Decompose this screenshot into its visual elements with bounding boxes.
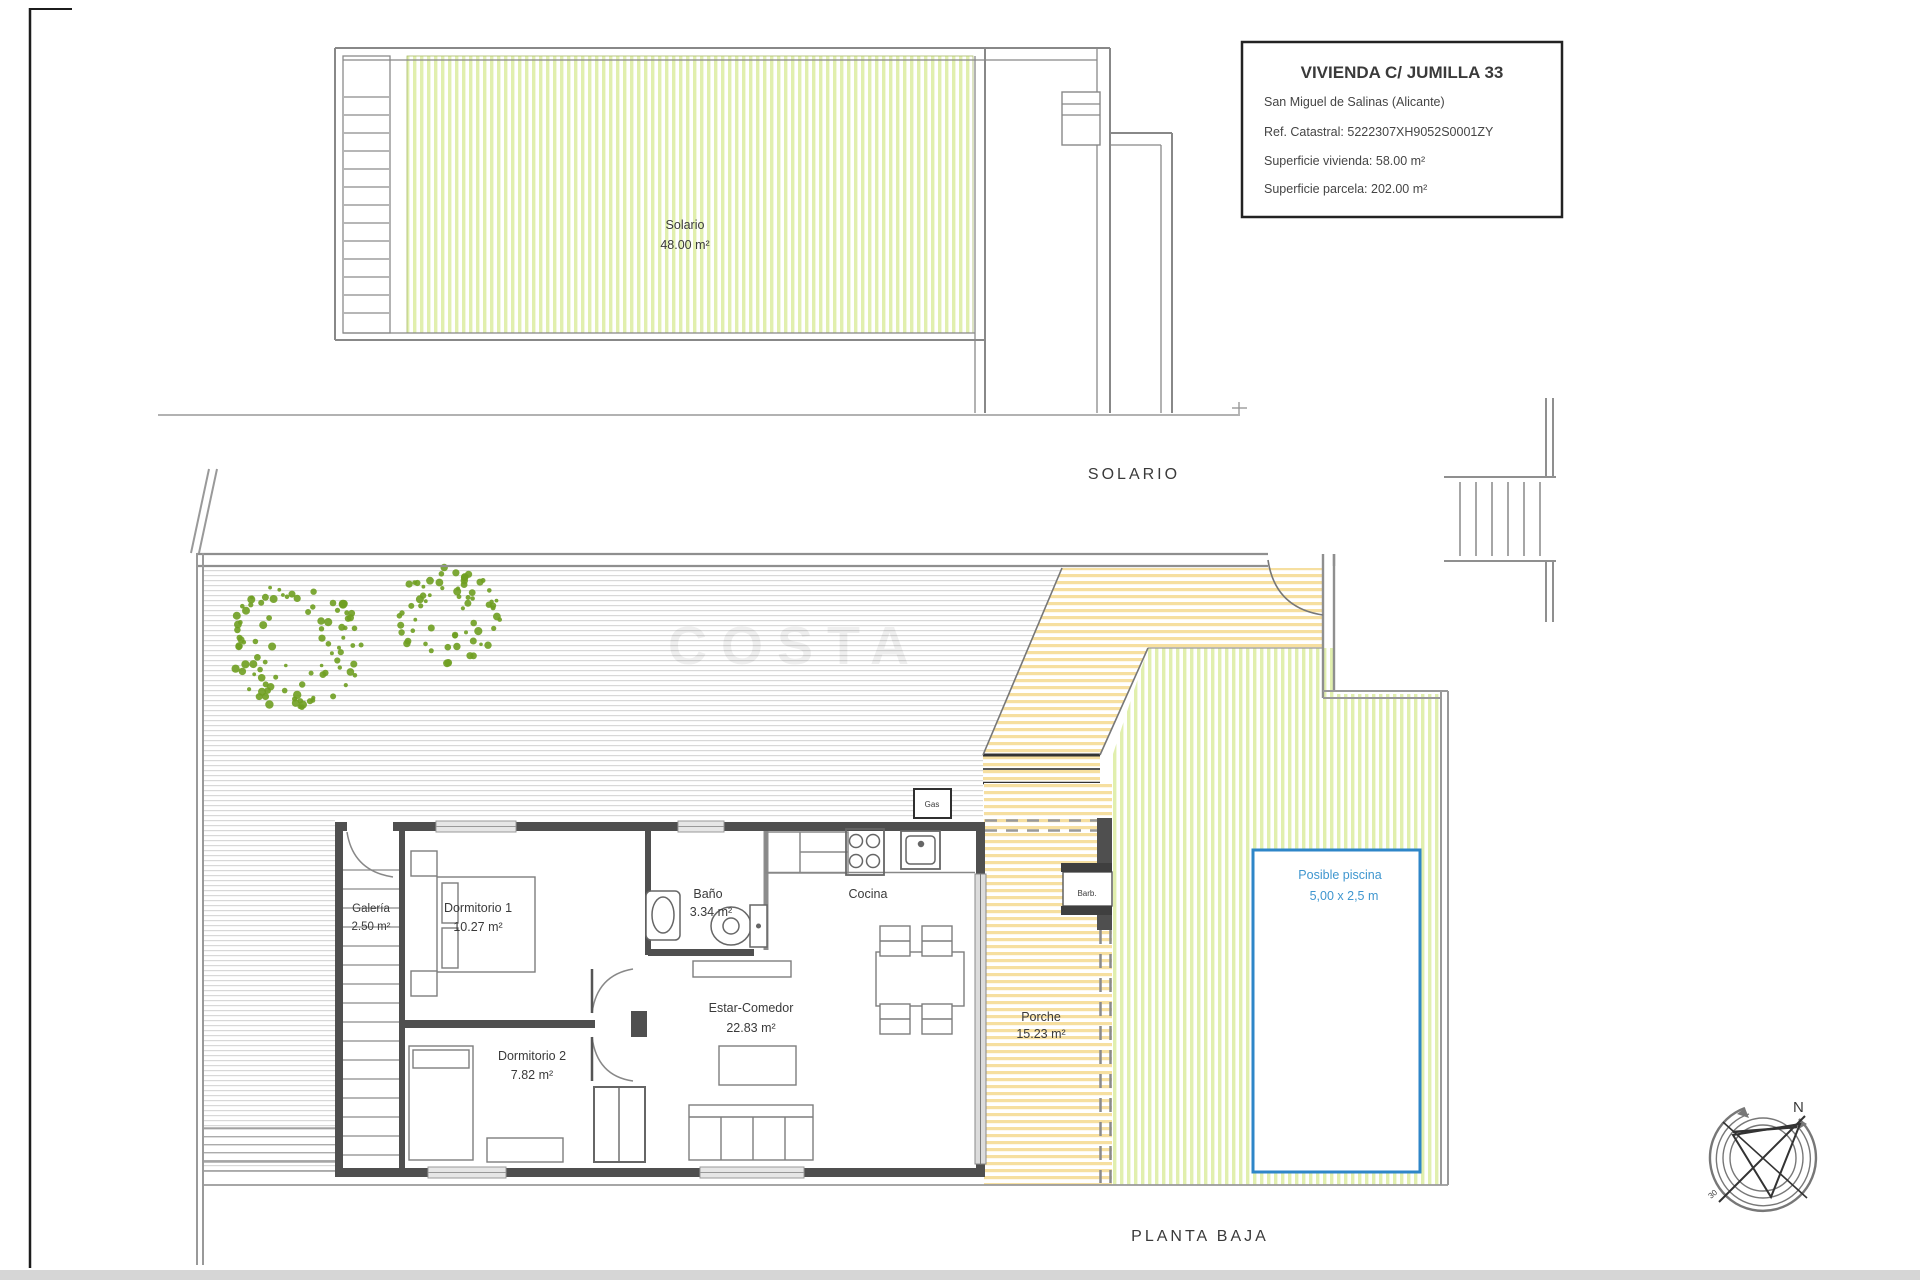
house: Galería 2.50 m² Dormitorio 1 10.27 m² Ba… xyxy=(335,821,986,1178)
title-block-title: VIVIENDA C/ JUMILLA 33 xyxy=(1301,63,1504,82)
gas-label: Gas xyxy=(925,800,940,809)
solario-section-title: SOLARIO xyxy=(1088,466,1180,483)
dormitorio1-label: Dormitorio 1 xyxy=(444,901,512,915)
porche-area: 15.23 m² xyxy=(1016,1027,1065,1041)
ground-plan: Posible piscina 5,00 x 2,5 m COSTA xyxy=(191,398,1556,1265)
title-block-superficie-parcela: Superficie parcela: 202.00 m² xyxy=(1264,182,1427,196)
galeria-area: 2.50 m² xyxy=(352,921,391,933)
compass-degrees-label: 30 xyxy=(1707,1188,1720,1201)
title-block-ref: Ref. Catastral: 5222307XH9052S0001ZY xyxy=(1264,125,1494,139)
compass-north-label: N xyxy=(1793,1099,1804,1116)
barbecue-label: Barb. xyxy=(1077,889,1096,898)
dormitorio2-label: Dormitorio 2 xyxy=(498,1049,566,1063)
roof-plan: Solario 48.00 m² xyxy=(158,48,1247,415)
washbasin-icon xyxy=(646,891,680,940)
watermark-text: COSTA xyxy=(668,616,923,676)
planta-baja-section-title: PLANTA BAJA xyxy=(1131,1228,1269,1245)
bottom-band xyxy=(0,1270,1920,1280)
estar-comedor-area: 22.83 m² xyxy=(726,1021,775,1035)
floor-plan-sheet: Solario 48.00 m² SOLARIO Posible piscina… xyxy=(0,0,1920,1280)
estar-comedor-label: Estar-Comedor xyxy=(709,1001,794,1015)
gas-box: Gas xyxy=(914,789,951,818)
cocina-label: Cocina xyxy=(849,887,888,901)
roof-annex xyxy=(1110,133,1172,413)
plan-drawing: Solario 48.00 m² SOLARIO Posible piscina… xyxy=(0,0,1920,1280)
roof-chimney xyxy=(1062,92,1100,145)
solario-room-label: Solario xyxy=(666,218,705,232)
galeria-label: Galería xyxy=(352,903,390,915)
solario-room-area: 48.00 m² xyxy=(660,238,709,252)
compass-rose: N 30 xyxy=(1707,1099,1816,1211)
dormitorio2-area: 7.82 m² xyxy=(511,1068,553,1082)
dormitorio1-area: 10.27 m² xyxy=(453,920,502,934)
bano-area: 3.34 m² xyxy=(690,905,732,919)
solario-deck-hatch xyxy=(407,56,973,333)
porch-hatch xyxy=(984,783,1112,1185)
title-block-superficie-vivienda: Superficie vivienda: 58.00 m² xyxy=(1264,154,1425,168)
neighbor-staircase xyxy=(1444,398,1556,622)
bano-label: Baño xyxy=(693,887,722,901)
pool-size-label: 5,00 x 2,5 m xyxy=(1310,889,1379,903)
glass-wall xyxy=(975,874,986,1164)
pool: Posible piscina 5,00 x 2,5 m xyxy=(1253,850,1420,1172)
title-block-location: San Miguel de Salinas (Alicante) xyxy=(1264,95,1445,109)
patio-storage-hatch xyxy=(203,1128,345,1162)
title-block: VIVIENDA C/ JUMILLA 33 San Miguel de Sal… xyxy=(1242,42,1562,217)
pool-label: Posible piscina xyxy=(1298,868,1381,882)
porche-label: Porche xyxy=(1021,1010,1061,1024)
